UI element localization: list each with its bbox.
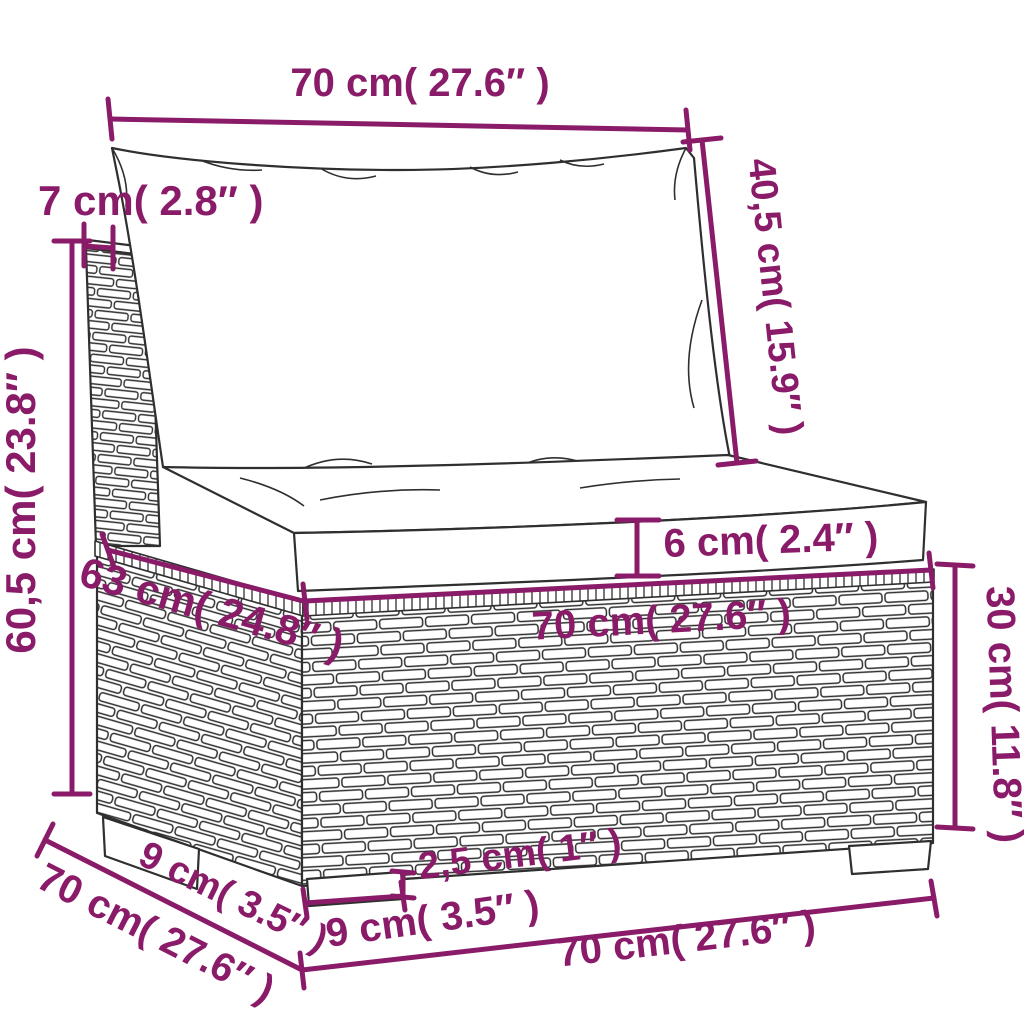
dim-back-width — [108, 99, 690, 150]
dim-label-frame-top: 7 cm( 2.8″ ) — [38, 177, 264, 224]
dimension-diagram: 70 cm( 27.6″ ) 7 cm( 2.8″ ) 40,5 cm( 15.… — [0, 0, 1024, 1024]
dim-label-back-width: 70 cm( 27.6″ ) — [290, 61, 549, 105]
leg-front-right — [849, 841, 931, 874]
sofa-dimension-figure: 70 cm( 27.6″ ) 7 cm( 2.8″ ) 40,5 cm( 15.… — [0, 0, 1024, 1024]
dim-label-total-height: 60,5 cm( 23.8″ ) — [0, 346, 44, 653]
dim-total-height — [54, 241, 90, 794]
dim-label-back-cushion-height: 40,5 cm( 15.9″ ) — [740, 156, 811, 437]
dim-label-base-width: 70 cm( 27.6″ ) — [555, 903, 818, 976]
dim-base-height — [937, 564, 973, 829]
dim-label-seat-cushion-thickness: 6 cm( 2.4″ ) — [663, 515, 879, 566]
dim-label-base-height: 30 cm( 11.8″ ) — [978, 585, 1024, 843]
